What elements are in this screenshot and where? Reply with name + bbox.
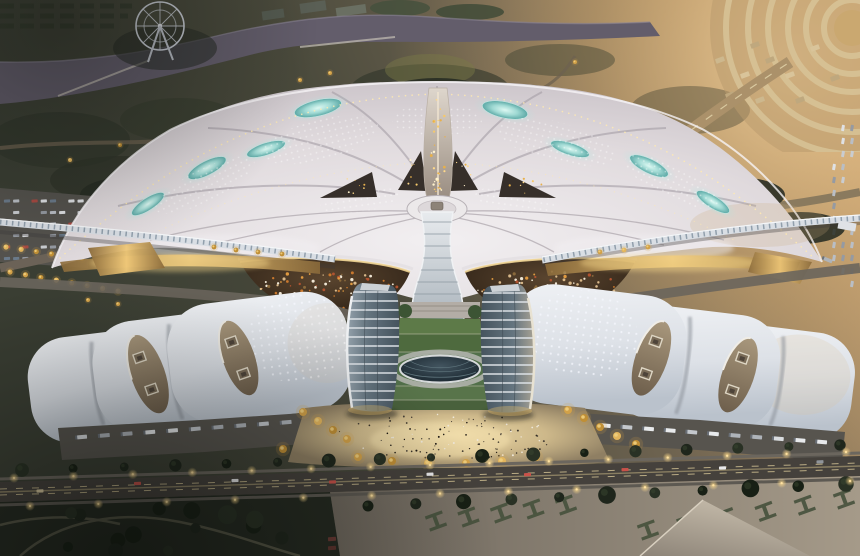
stall-dot <box>341 274 342 275</box>
stall-dot <box>491 278 493 280</box>
stall-dot <box>592 275 594 277</box>
street-lamp <box>777 478 787 488</box>
spark <box>439 188 441 190</box>
tree <box>792 480 804 492</box>
lit-tree <box>593 420 607 434</box>
spark <box>436 99 438 101</box>
spark <box>440 108 441 109</box>
spark <box>434 188 436 190</box>
tree <box>598 486 616 504</box>
street-lamp <box>640 482 650 492</box>
stall-dot <box>521 282 523 284</box>
stall-dot <box>286 272 289 275</box>
tree <box>526 447 540 461</box>
person-dot <box>517 430 519 432</box>
person-dot <box>500 434 501 435</box>
spark <box>437 180 439 182</box>
spark <box>433 167 435 169</box>
person-dot <box>521 451 523 453</box>
spark <box>407 183 409 185</box>
rendering-canvas <box>0 0 860 556</box>
lit-tree <box>21 270 30 279</box>
spark <box>413 164 414 165</box>
lit-tree <box>571 58 578 65</box>
spark <box>443 166 446 169</box>
car <box>621 468 628 471</box>
stall-dot <box>519 282 521 284</box>
spark <box>470 174 471 175</box>
tree <box>649 487 660 498</box>
person-dot <box>527 448 529 450</box>
street-lamp <box>782 449 792 459</box>
dusk-shadow-bl <box>0 280 500 556</box>
stall-dot <box>588 273 591 276</box>
spark <box>439 183 440 184</box>
spark <box>435 191 436 192</box>
spark <box>540 184 542 186</box>
person-dot <box>539 440 541 442</box>
spark <box>461 166 462 167</box>
stall-dot <box>272 277 274 279</box>
lit-tree <box>610 429 624 443</box>
dusk-shadow-tl <box>0 0 320 260</box>
lit-tree <box>596 248 605 257</box>
spark <box>464 164 466 166</box>
stall-dot <box>533 274 535 276</box>
person-dot <box>516 452 518 454</box>
spark <box>410 176 412 178</box>
stall-dot <box>351 271 354 274</box>
spark <box>439 119 441 121</box>
street-lamp <box>722 451 732 461</box>
spark <box>523 181 525 183</box>
car <box>524 473 531 476</box>
person-dot <box>510 431 512 433</box>
spark <box>443 115 445 117</box>
stall-dot <box>595 285 598 288</box>
spark <box>411 165 412 166</box>
stall-dot <box>597 281 599 283</box>
stall-dot <box>613 286 615 288</box>
spark <box>432 183 434 185</box>
lit-tree <box>326 69 333 76</box>
spark <box>467 165 469 167</box>
person-dot <box>524 448 526 450</box>
person-dot <box>515 440 517 442</box>
stall-dot <box>520 277 523 280</box>
street-lamp <box>544 456 554 466</box>
spark <box>456 162 457 163</box>
stall-dot <box>309 273 311 275</box>
hub-pavilion <box>431 202 443 210</box>
spark <box>416 184 418 186</box>
spark <box>520 185 521 186</box>
spark <box>532 180 534 182</box>
stall-dot <box>328 273 331 276</box>
spark <box>359 185 360 186</box>
spark <box>433 151 435 153</box>
lit-tree <box>644 243 653 252</box>
tree <box>629 445 641 457</box>
spark <box>355 180 356 181</box>
person-dot <box>543 440 545 442</box>
stall-dot <box>583 278 585 280</box>
spark <box>509 184 511 186</box>
tree <box>554 492 564 502</box>
spark <box>433 131 435 133</box>
stall-dot <box>364 274 366 276</box>
street-lamp <box>841 447 851 457</box>
spark <box>443 170 445 172</box>
tree <box>732 443 743 454</box>
spark <box>524 193 525 194</box>
stall-dot <box>513 272 516 275</box>
stall-dot <box>563 275 566 278</box>
lit-tree <box>620 246 629 255</box>
person-dot <box>536 435 538 437</box>
spark <box>430 154 433 157</box>
spark <box>437 125 439 127</box>
car <box>816 460 823 463</box>
person-dot <box>546 444 547 445</box>
person-dot <box>537 425 539 427</box>
spark <box>434 144 435 145</box>
spark <box>431 152 433 154</box>
lit-tree <box>5 267 14 276</box>
aerial-rendering <box>0 0 860 556</box>
stall-dot <box>515 280 518 283</box>
spark <box>363 187 365 189</box>
lit-tree <box>577 411 591 425</box>
stall-dot <box>573 282 575 284</box>
stall-dot <box>525 276 528 279</box>
stall-dot <box>609 278 612 281</box>
stall-dot <box>568 282 571 285</box>
stall-dot <box>531 279 533 281</box>
spark <box>409 159 411 161</box>
stall-dot <box>369 275 372 278</box>
spark <box>438 120 439 121</box>
stall-dot <box>550 279 553 282</box>
stall-dot <box>322 274 323 275</box>
tree <box>698 486 708 496</box>
stall-dot <box>534 276 536 278</box>
stall-dot <box>332 273 335 276</box>
car <box>719 466 726 469</box>
person-dot <box>512 454 514 456</box>
spark <box>523 178 525 180</box>
lit-tree <box>561 403 575 417</box>
person-dot <box>520 436 521 437</box>
stall-dot <box>576 283 579 286</box>
person-dot <box>539 448 541 450</box>
street-lamp <box>603 454 613 464</box>
spark <box>353 192 355 194</box>
tree <box>681 444 693 456</box>
street-lamp <box>708 480 718 490</box>
street-lamp <box>503 486 513 496</box>
tree <box>742 480 760 498</box>
spark <box>444 136 445 137</box>
spark <box>439 173 441 175</box>
spark <box>438 187 440 189</box>
spark <box>464 185 465 186</box>
spark <box>363 184 365 186</box>
stall-dot <box>555 275 557 277</box>
stall-dot <box>555 282 557 284</box>
street-lamp <box>572 484 582 494</box>
street-lamp <box>845 476 855 486</box>
stall-dot <box>337 277 340 280</box>
spark <box>433 120 435 122</box>
spark <box>346 178 347 179</box>
stall-dot <box>508 274 511 277</box>
person-dot <box>511 449 512 450</box>
person-dot <box>506 423 508 425</box>
tree <box>580 449 588 457</box>
stall-dot <box>301 276 304 279</box>
street-lamp <box>663 453 673 463</box>
person-dot <box>531 427 533 429</box>
spark <box>348 191 350 193</box>
spark <box>434 181 435 182</box>
stall-dot <box>563 278 566 281</box>
stall-dot <box>580 279 583 282</box>
